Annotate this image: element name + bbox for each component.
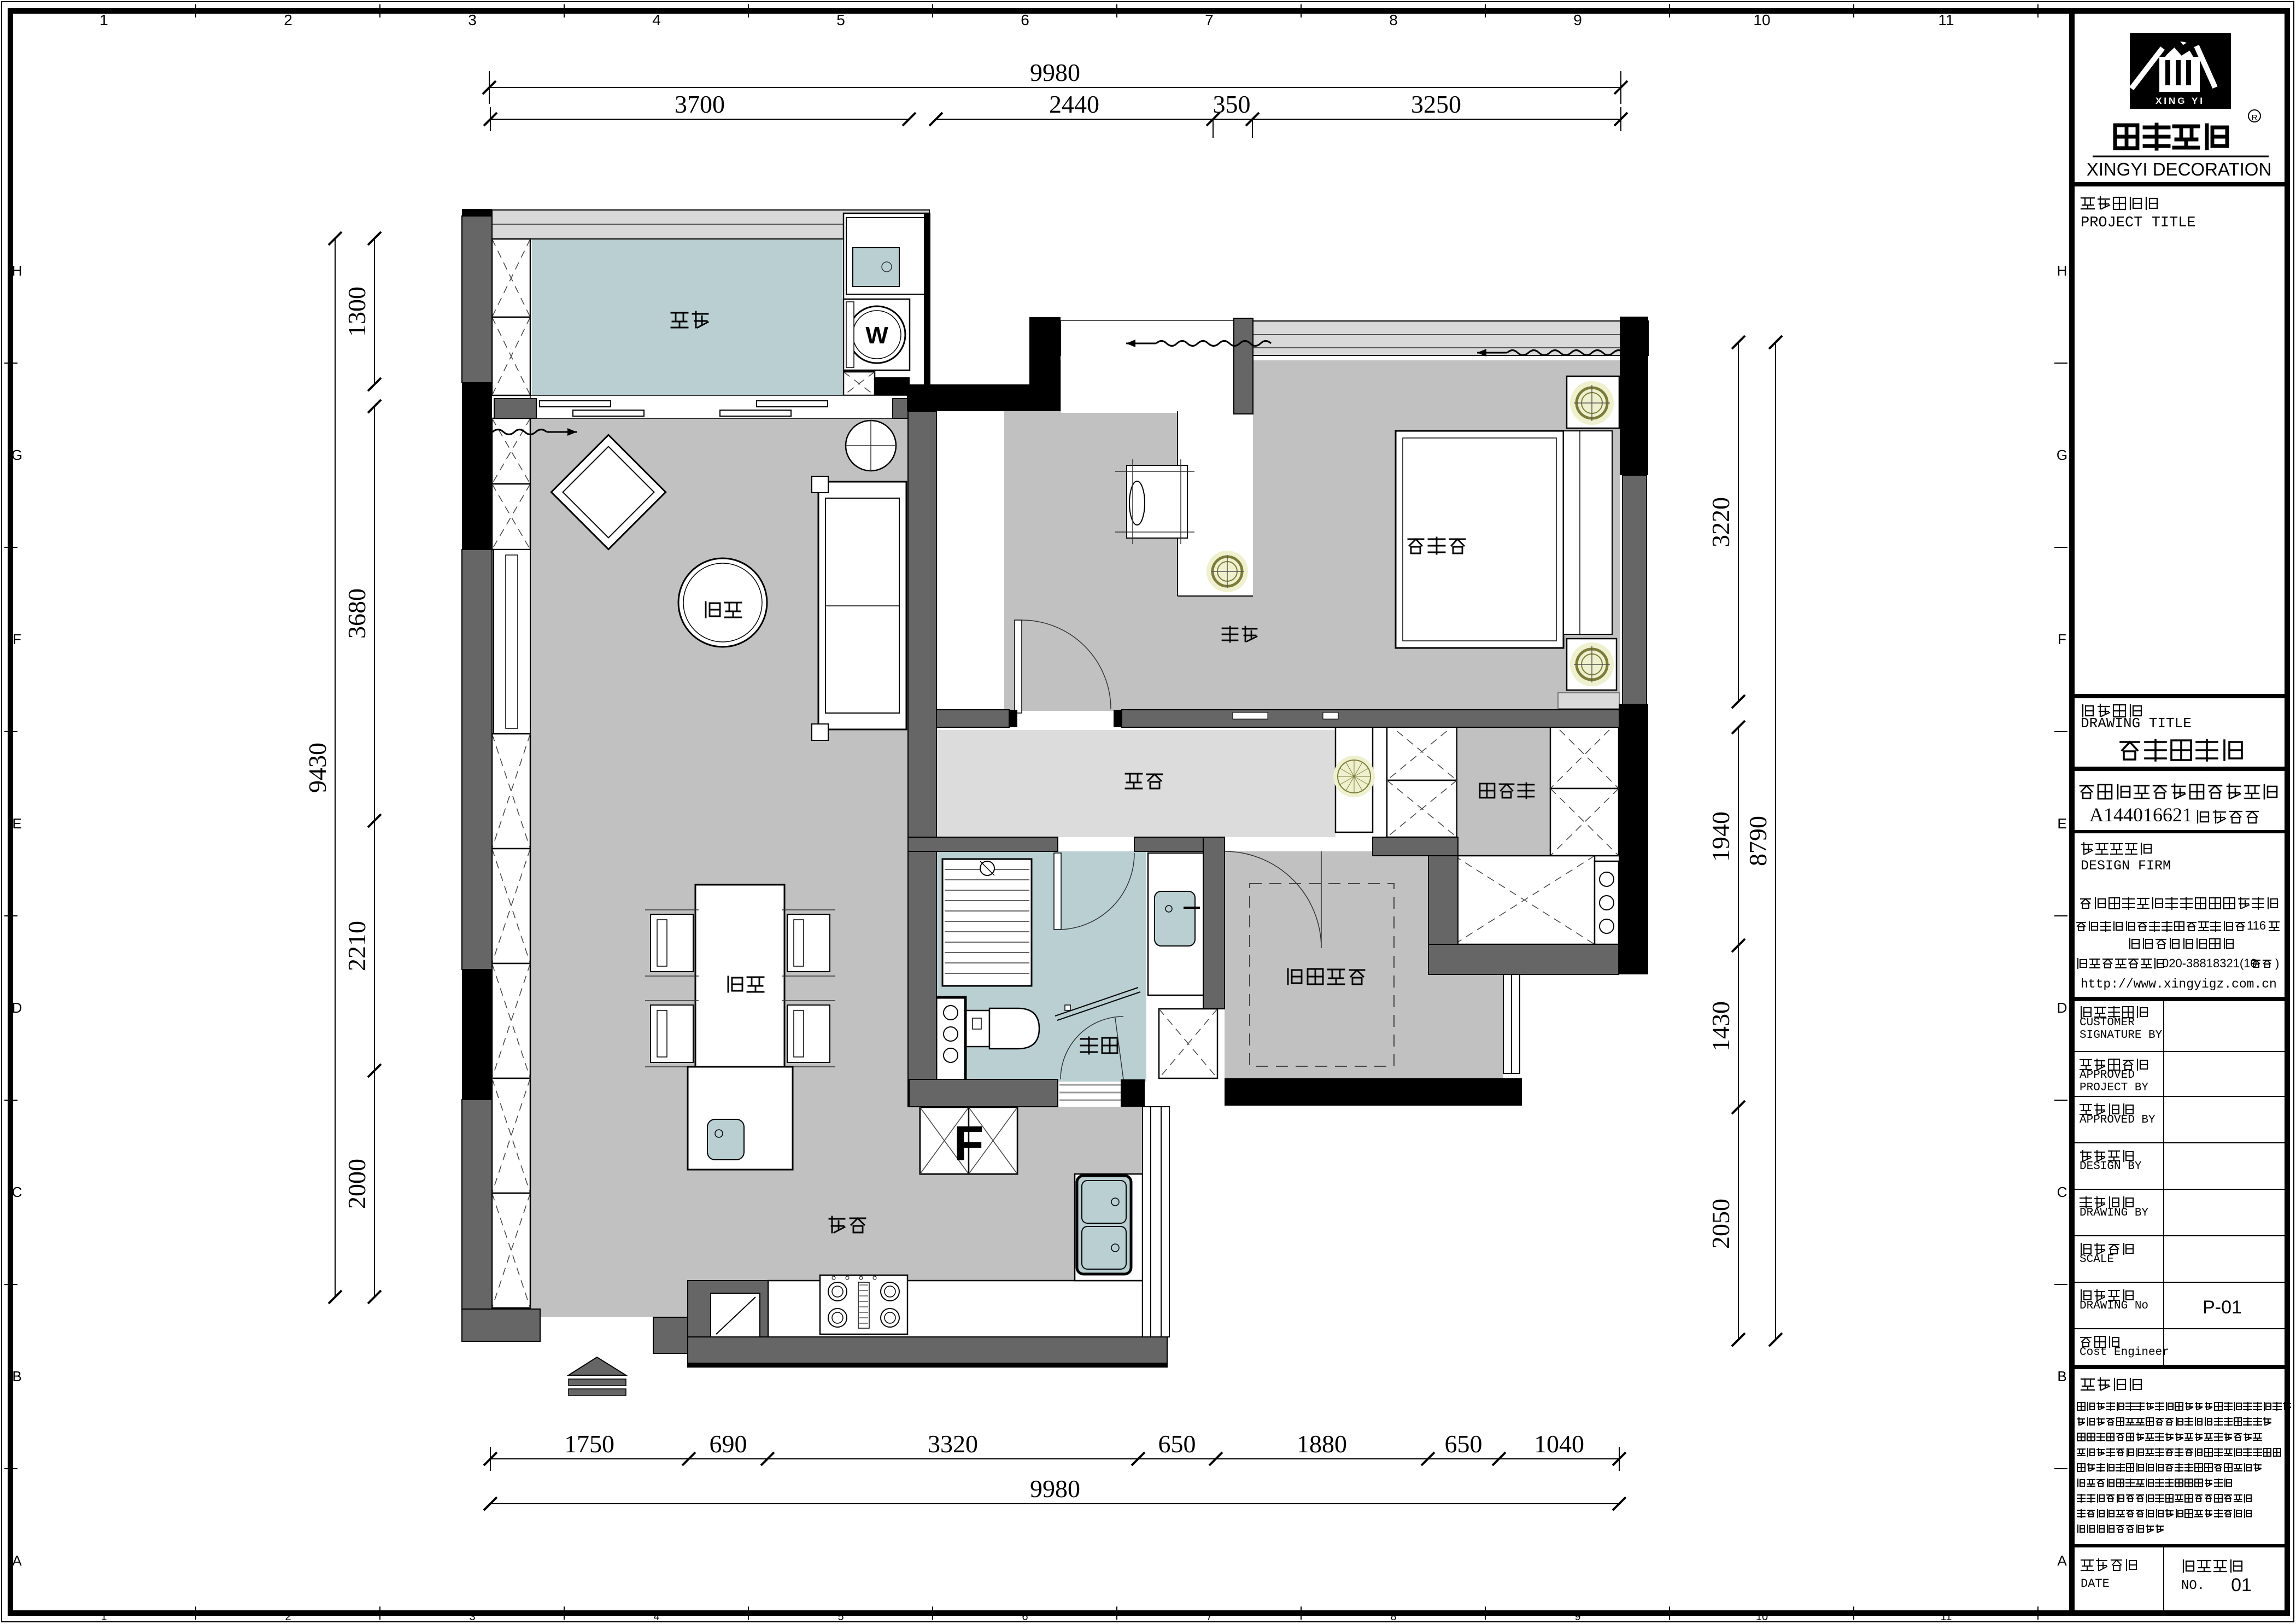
svg-text:H: H xyxy=(2057,262,2067,279)
svg-text:A144016621: A144016621 xyxy=(2089,804,2192,826)
svg-text:2: 2 xyxy=(284,11,292,28)
svg-text:C: C xyxy=(2057,1184,2067,1200)
svg-text:F: F xyxy=(13,631,21,647)
svg-text:1040: 1040 xyxy=(1534,1430,1584,1458)
svg-text:XINGYI DECORATION: XINGYI DECORATION xyxy=(2087,159,2272,179)
svg-text:116: 116 xyxy=(2247,919,2266,932)
svg-text:DRAWING BY: DRAWING BY xyxy=(2080,1207,2148,1219)
svg-text:P-01: P-01 xyxy=(2203,1297,2242,1318)
svg-text:2050: 2050 xyxy=(1707,1199,1735,1249)
svg-text:690: 690 xyxy=(710,1430,747,1458)
svg-text:10: 10 xyxy=(1756,1611,1768,1623)
svg-text:H: H xyxy=(12,262,22,279)
svg-text:1: 1 xyxy=(101,1611,107,1623)
svg-text:F: F xyxy=(2058,631,2066,647)
svg-text:C: C xyxy=(12,1184,22,1200)
svg-text:3220: 3220 xyxy=(1707,497,1735,547)
svg-text:DRAWING TITLE: DRAWING TITLE xyxy=(2081,715,2192,732)
svg-text:6: 6 xyxy=(1021,11,1029,28)
svg-text:11: 11 xyxy=(1941,1611,1952,1623)
svg-text:8790: 8790 xyxy=(1744,816,1772,866)
svg-text:DRAWING No: DRAWING No xyxy=(2080,1300,2148,1312)
svg-text:CUSTOMER: CUSTOMER xyxy=(2080,1017,2135,1029)
svg-text:7: 7 xyxy=(1205,11,1214,28)
svg-text:D: D xyxy=(12,1000,22,1016)
svg-text:DESIGN FIRM: DESIGN FIRM xyxy=(2081,858,2171,874)
svg-text:XING YI: XING YI xyxy=(2156,96,2205,106)
svg-text:B: B xyxy=(12,1368,21,1385)
svg-text:PROJECT BY: PROJECT BY xyxy=(2080,1082,2148,1094)
svg-text:NO.: NO. xyxy=(2181,1579,2205,1593)
svg-text:5: 5 xyxy=(836,11,845,28)
svg-text:W: W xyxy=(865,322,888,349)
svg-text:A: A xyxy=(2057,1552,2067,1569)
svg-text:E: E xyxy=(2057,815,2066,832)
svg-text:5: 5 xyxy=(837,1611,844,1623)
svg-text:7: 7 xyxy=(1206,1611,1212,1623)
svg-text:1750: 1750 xyxy=(564,1430,614,1458)
svg-text:6: 6 xyxy=(1022,1611,1028,1623)
svg-text:D: D xyxy=(2057,1000,2067,1016)
svg-text:1300: 1300 xyxy=(343,287,371,337)
svg-text:2210: 2210 xyxy=(343,921,371,971)
svg-text:10: 10 xyxy=(1753,11,1770,28)
svg-text:3320: 3320 xyxy=(928,1430,978,1458)
svg-text:APPROVED: APPROVED xyxy=(2080,1069,2135,1082)
svg-text:G: G xyxy=(2057,447,2067,463)
svg-text:SCALE: SCALE xyxy=(2080,1253,2114,1266)
svg-text:R: R xyxy=(2252,113,2258,122)
svg-text:9980: 9980 xyxy=(1030,59,1080,86)
svg-text:E: E xyxy=(12,815,21,832)
svg-text:3: 3 xyxy=(469,1611,475,1623)
svg-text:9980: 9980 xyxy=(1030,1475,1080,1503)
svg-text:SIGNATURE BY: SIGNATURE BY xyxy=(2080,1029,2163,1042)
svg-text:4: 4 xyxy=(652,11,661,28)
svg-text:2: 2 xyxy=(285,1611,291,1623)
svg-text:APPROVED BY: APPROVED BY xyxy=(2080,1114,2156,1126)
svg-text:1880: 1880 xyxy=(1297,1430,1347,1458)
svg-text:9430: 9430 xyxy=(303,743,331,793)
svg-text:A: A xyxy=(12,1552,22,1569)
svg-text:9: 9 xyxy=(1574,1611,1580,1623)
svg-text:http://www.xingyigz.com.cn: http://www.xingyigz.com.cn xyxy=(2081,977,2277,991)
svg-text:020-38818321(10: 020-38818321(10 xyxy=(2162,956,2257,970)
svg-text:3250: 3250 xyxy=(1411,90,1461,118)
svg-text:8: 8 xyxy=(1389,11,1398,28)
svg-text:F: F xyxy=(954,1117,984,1171)
svg-text:1: 1 xyxy=(99,11,108,28)
svg-text:11: 11 xyxy=(1938,11,1954,28)
svg-text:3700: 3700 xyxy=(675,90,725,118)
svg-text:1940: 1940 xyxy=(1707,811,1735,862)
svg-text:1430: 1430 xyxy=(1707,1001,1735,1051)
svg-text:B: B xyxy=(2057,1368,2066,1385)
svg-text:650: 650 xyxy=(1445,1430,1483,1458)
svg-text:3680: 3680 xyxy=(343,588,371,639)
svg-text:G: G xyxy=(11,447,22,463)
svg-text:9: 9 xyxy=(1573,11,1582,28)
svg-text:): ) xyxy=(2275,956,2279,970)
svg-text:Cost Engineer: Cost Engineer xyxy=(2080,1346,2169,1359)
svg-text:2440: 2440 xyxy=(1049,90,1099,118)
svg-text:4: 4 xyxy=(653,1611,659,1623)
svg-text:650: 650 xyxy=(1158,1430,1196,1458)
svg-text:DESIGN BY: DESIGN BY xyxy=(2080,1160,2142,1173)
svg-text:2000: 2000 xyxy=(343,1159,371,1209)
svg-text:350: 350 xyxy=(1213,90,1251,118)
svg-text:DATE: DATE xyxy=(2081,1577,2110,1591)
svg-text:PROJECT TITLE: PROJECT TITLE xyxy=(2081,215,2196,231)
svg-text:8: 8 xyxy=(1390,1611,1396,1623)
svg-text:01: 01 xyxy=(2231,1575,2252,1596)
svg-text:3: 3 xyxy=(468,11,477,28)
